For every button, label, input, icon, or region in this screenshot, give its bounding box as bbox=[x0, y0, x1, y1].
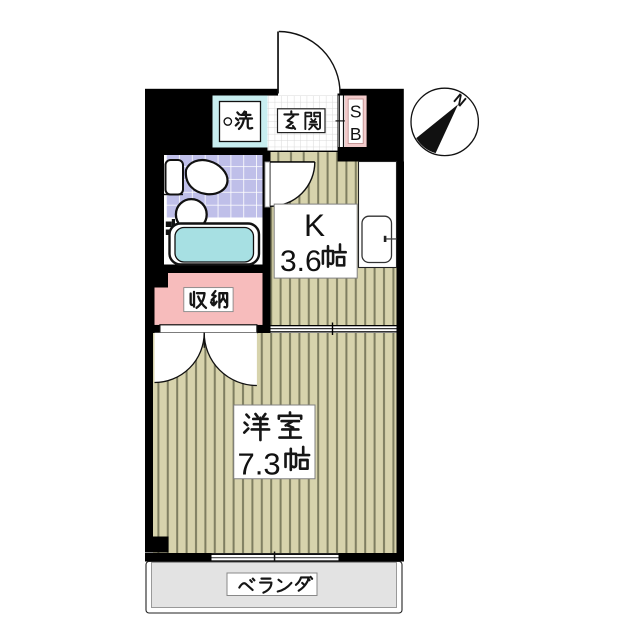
svg-text:B: B bbox=[350, 124, 362, 144]
svg-text:K: K bbox=[304, 207, 325, 243]
svg-text:S: S bbox=[350, 102, 362, 122]
svg-text:3.6: 3.6 bbox=[280, 245, 322, 278]
svg-text:7.3: 7.3 bbox=[238, 447, 281, 482]
